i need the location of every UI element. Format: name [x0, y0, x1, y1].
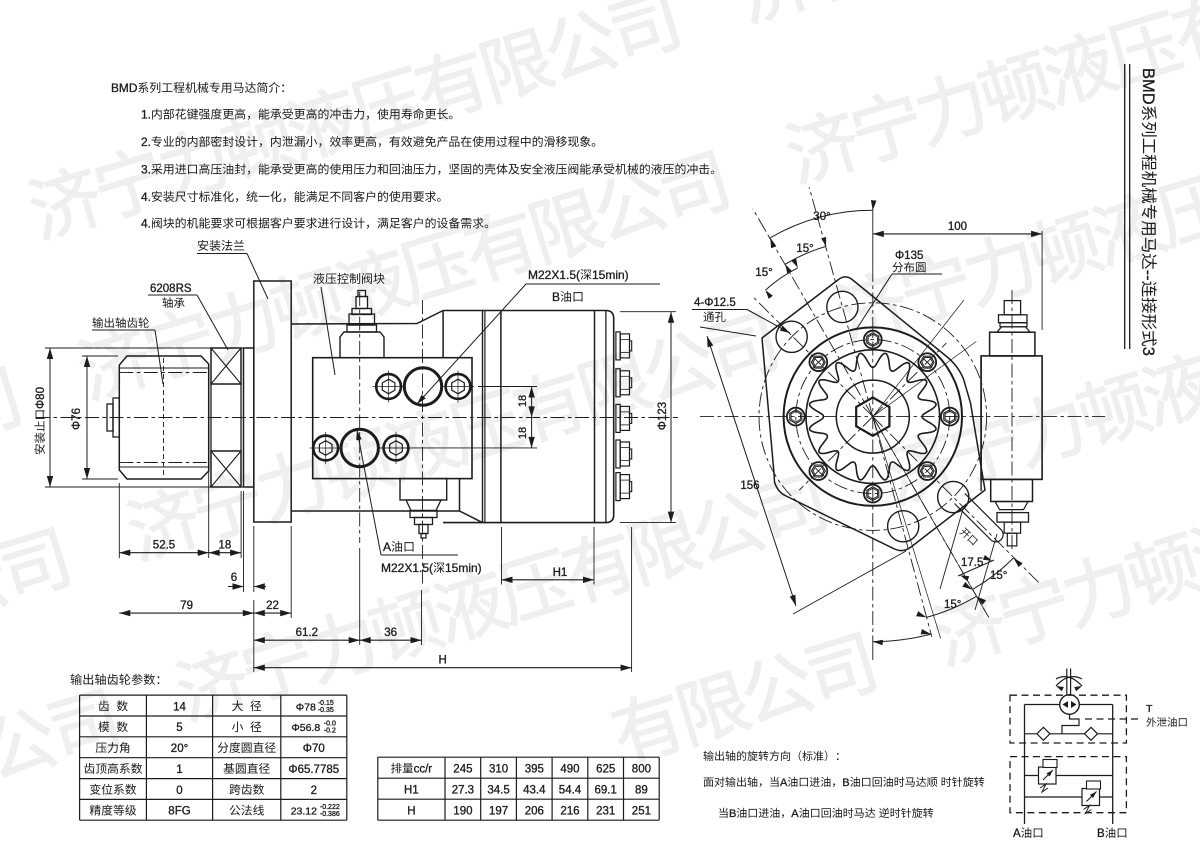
- svg-text:69.1: 69.1: [595, 784, 617, 796]
- svg-text:-0.222: -0.222: [320, 804, 340, 811]
- svg-text:18: 18: [517, 427, 529, 439]
- svg-text:206: 206: [525, 805, 544, 817]
- svg-text:15°: 15°: [796, 243, 813, 255]
- svg-text:-0.2: -0.2: [324, 728, 336, 735]
- svg-text:1: 1: [176, 764, 182, 776]
- svg-text:B: B: [1097, 828, 1105, 840]
- svg-text:Φ56.8: Φ56.8: [291, 722, 320, 734]
- svg-text:4.: 4.: [141, 217, 151, 231]
- svg-text:18: 18: [219, 540, 232, 552]
- svg-text:Φ65.7785: Φ65.7785: [288, 764, 339, 776]
- svg-text:14: 14: [173, 701, 186, 713]
- svg-text:BMD: BMD: [1139, 68, 1157, 105]
- svg-text:20°: 20°: [171, 743, 188, 755]
- svg-text:22: 22: [266, 600, 279, 612]
- svg-text:2: 2: [311, 785, 317, 797]
- svg-text:B: B: [842, 777, 849, 789]
- svg-text:5: 5: [176, 722, 182, 734]
- svg-text:6: 6: [231, 572, 237, 584]
- svg-text:15min): 15min): [445, 561, 482, 575]
- svg-text:18: 18: [517, 395, 529, 407]
- svg-text:Φ76: Φ76: [71, 408, 83, 430]
- svg-text:310: 310: [489, 763, 508, 775]
- svg-text:--: --: [1139, 270, 1157, 281]
- svg-text:190: 190: [453, 805, 472, 817]
- svg-text:4.: 4.: [141, 190, 151, 204]
- svg-text:43.4: 43.4: [523, 784, 546, 796]
- svg-text:-0.0: -0.0: [324, 721, 336, 728]
- svg-text:T: T: [1146, 703, 1153, 715]
- svg-text:251: 251: [632, 805, 651, 817]
- svg-text:3: 3: [1139, 347, 1157, 356]
- svg-text:245: 245: [453, 763, 472, 775]
- svg-text:34.5: 34.5: [487, 784, 509, 796]
- svg-text:Φ80: Φ80: [35, 387, 47, 409]
- svg-text:36: 36: [384, 627, 397, 639]
- svg-text:17.5: 17.5: [961, 557, 983, 569]
- svg-text:6208RS: 6208RS: [150, 283, 192, 295]
- svg-text:2.: 2.: [141, 135, 151, 149]
- svg-text:A: A: [383, 540, 391, 554]
- svg-text:89: 89: [635, 784, 648, 796]
- svg-text:A: A: [791, 808, 799, 820]
- svg-text:23.12: 23.12: [291, 806, 317, 818]
- svg-text:Φ70: Φ70: [303, 743, 325, 755]
- svg-text:395: 395: [525, 763, 544, 775]
- svg-text:H: H: [407, 805, 415, 817]
- svg-text:54.4: 54.4: [559, 784, 582, 796]
- svg-text:-0.386: -0.386: [320, 811, 340, 818]
- svg-text:1.: 1.: [141, 108, 151, 122]
- svg-text:A: A: [780, 777, 788, 789]
- svg-text:15min): 15min): [592, 268, 629, 282]
- svg-text:490: 490: [560, 763, 579, 775]
- svg-text:231: 231: [596, 805, 615, 817]
- svg-text:0: 0: [176, 785, 182, 797]
- svg-text:-0.35: -0.35: [318, 707, 334, 714]
- svg-text:30°: 30°: [813, 211, 830, 223]
- svg-text:156: 156: [740, 480, 759, 492]
- svg-text:cc/r: cc/r: [414, 763, 433, 775]
- svg-text:M22X1.5(: M22X1.5(: [528, 268, 580, 282]
- svg-text:H1: H1: [553, 567, 568, 579]
- svg-text:Φ123: Φ123: [657, 402, 669, 430]
- svg-text:52.5: 52.5: [153, 540, 175, 552]
- svg-text:61.2: 61.2: [296, 627, 318, 639]
- svg-text:197: 197: [489, 805, 508, 817]
- svg-text:15°: 15°: [944, 599, 961, 611]
- svg-text:100: 100: [948, 221, 967, 233]
- svg-text:H1: H1: [404, 784, 419, 796]
- svg-text:15°: 15°: [755, 267, 772, 279]
- svg-text:216: 216: [560, 805, 579, 817]
- svg-text:800: 800: [632, 763, 651, 775]
- svg-text:B: B: [552, 290, 560, 304]
- svg-text:3.: 3.: [141, 163, 151, 177]
- svg-text:B: B: [729, 808, 736, 820]
- svg-text:Φ135: Φ135: [895, 250, 923, 262]
- svg-text:-0.15: -0.15: [318, 700, 334, 707]
- svg-text:4-Φ12.5: 4-Φ12.5: [694, 297, 736, 309]
- svg-text:8FG: 8FG: [168, 806, 190, 818]
- svg-text:H: H: [439, 655, 447, 667]
- svg-text:27.3: 27.3: [452, 784, 474, 796]
- svg-text:Φ78: Φ78: [296, 701, 316, 713]
- svg-text:15°: 15°: [990, 570, 1007, 582]
- svg-text:BMD: BMD: [111, 81, 138, 95]
- svg-text:79: 79: [180, 600, 193, 612]
- svg-text:625: 625: [596, 763, 615, 775]
- svg-text:M22X1.5(: M22X1.5(: [381, 561, 433, 575]
- svg-text:A: A: [1013, 828, 1021, 840]
